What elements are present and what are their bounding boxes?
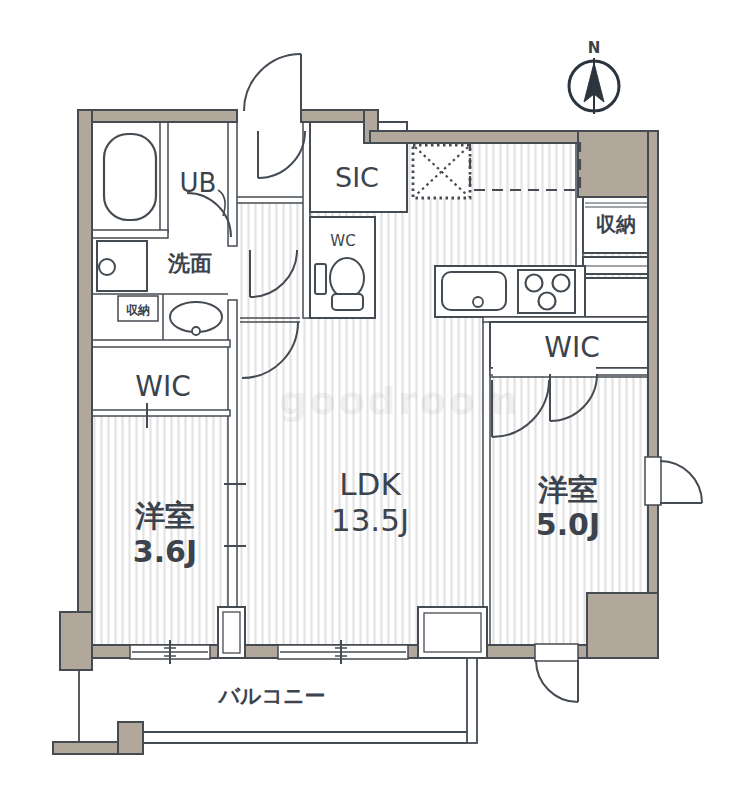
- wic-door-opening: [493, 367, 596, 376]
- room-label-storage-small: 収納: [126, 303, 150, 317]
- wall-left-column-lower: [228, 300, 237, 645]
- room-label-balcony: バルコニー: [218, 684, 326, 708]
- wall-ldk-bedroom: [483, 322, 490, 645]
- room-label-wic-right: WIC: [544, 331, 600, 364]
- kitchen-cabinet: [583, 278, 650, 317]
- wall-wic-bottom: [92, 410, 230, 416]
- pillar-center: [418, 607, 487, 658]
- floor-plan-page: goodroom: [0, 0, 756, 800]
- stove-icon: [518, 270, 575, 313]
- wall-wic-top: [92, 340, 230, 347]
- room-label-wc: WC: [330, 232, 355, 250]
- room-label-washroom: 洗面: [167, 251, 212, 276]
- room-area-ldk: 13.5J: [331, 502, 409, 538]
- room-label-bedroom-right: 洋室: [537, 472, 598, 507]
- bathtub-icon: [104, 134, 156, 220]
- room-label-bedroom-left: 洋室: [134, 498, 195, 533]
- floor-plan: goodroom: [0, 0, 756, 800]
- room-label-sic: SIC: [335, 162, 379, 193]
- wall-hall: [303, 122, 310, 318]
- door-opening-bottom: [535, 644, 578, 661]
- door-opening-right: [645, 457, 661, 505]
- room-area-bedroom-left: 3.6J: [133, 534, 197, 569]
- refrigerator-space: [413, 145, 470, 198]
- room-label-storage-right: 収納: [596, 212, 636, 236]
- room-label-ldk: LDK: [339, 466, 401, 502]
- compass-north-label: N: [588, 39, 601, 57]
- room-area-bedroom-right: 5.0J: [536, 507, 600, 542]
- wall-ub-bottom: [92, 230, 168, 238]
- pillar-left: [218, 607, 245, 658]
- room-label-wic-left: WIC: [135, 370, 191, 403]
- wall-ub: [160, 122, 168, 232]
- room-label-ub: UB: [180, 168, 217, 198]
